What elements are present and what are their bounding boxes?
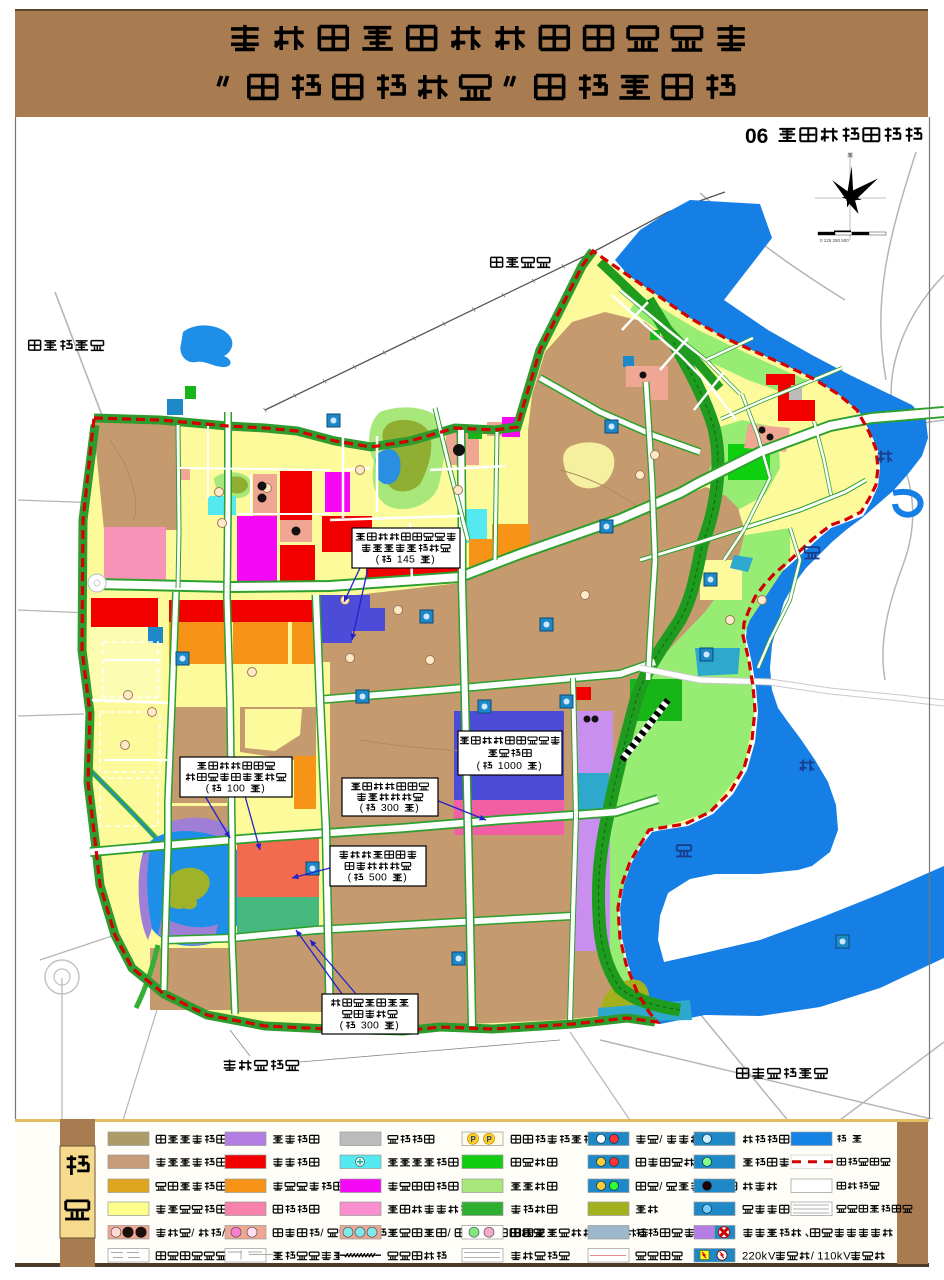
svg-text:(: (: [206, 783, 210, 795]
svg-text:06: 06: [745, 125, 768, 148]
svg-text:V: V: [843, 1250, 851, 1262]
svg-text:0: 0: [373, 1020, 379, 1032]
svg-text:3: 3: [381, 802, 387, 814]
svg-text:1: 1: [227, 783, 233, 795]
svg-text:): ): [431, 554, 435, 566]
svg-text:): ): [403, 872, 407, 884]
svg-text:): ): [395, 1020, 399, 1032]
svg-text:(: (: [360, 802, 364, 814]
svg-text:V: V: [768, 1250, 776, 1262]
svg-text:(: (: [340, 1020, 344, 1032]
svg-text:): ): [261, 783, 265, 795]
svg-text:0: 0: [830, 1250, 836, 1262]
svg-text:0: 0: [239, 783, 245, 795]
svg-text:1: 1: [397, 554, 403, 566]
svg-text:(: (: [477, 760, 481, 772]
svg-text:(: (: [348, 872, 352, 884]
svg-text:k: k: [762, 1250, 768, 1262]
svg-text:): ): [415, 802, 419, 814]
svg-text:k: k: [837, 1250, 843, 1262]
svg-text:0: 0: [755, 1250, 761, 1262]
svg-text:5: 5: [369, 872, 375, 884]
svg-text:0: 0: [381, 872, 387, 884]
svg-text:P: P: [471, 1135, 477, 1144]
svg-text:1: 1: [498, 760, 504, 772]
svg-text:1: 1: [824, 1250, 830, 1262]
svg-text:0: 0: [504, 760, 510, 772]
svg-text:(: (: [376, 554, 380, 566]
svg-text:3: 3: [361, 1020, 367, 1032]
svg-text:2: 2: [742, 1250, 748, 1262]
svg-text:0: 0: [516, 760, 522, 772]
svg-text:2: 2: [749, 1250, 755, 1262]
svg-text:P: P: [487, 1135, 493, 1144]
svg-text:): ): [538, 760, 542, 772]
svg-text:0 125 250 500: 0 125 250 500: [820, 238, 849, 243]
svg-text:0: 0: [510, 760, 516, 772]
svg-text:1: 1: [817, 1250, 823, 1262]
svg-text:0: 0: [393, 802, 399, 814]
svg-text:5: 5: [409, 554, 415, 566]
